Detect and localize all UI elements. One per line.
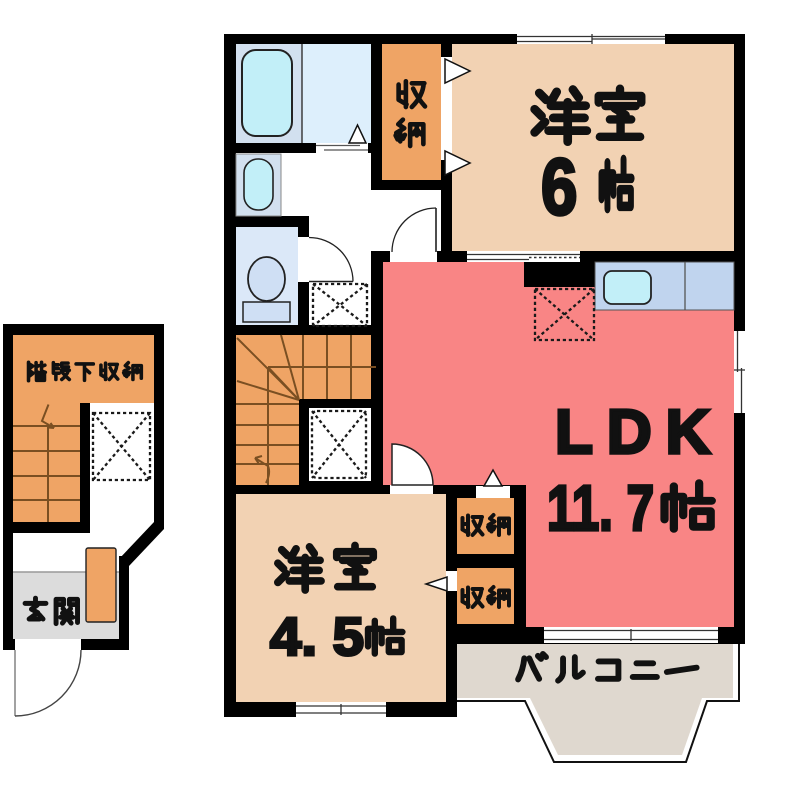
svg-text:6: 6 [541, 142, 577, 232]
svg-text:11. 7: 11. 7 [547, 472, 654, 544]
svg-text:4. 5: 4. 5 [270, 607, 364, 667]
svg-text:LDK: LDK [555, 398, 724, 467]
